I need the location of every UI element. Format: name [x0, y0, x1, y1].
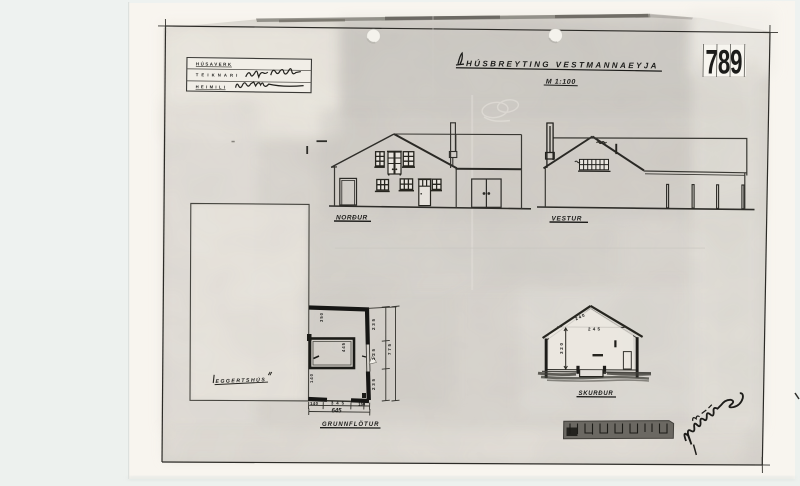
svg-text:345: 345 [331, 401, 345, 406]
svg-text:645: 645 [332, 409, 343, 415]
svg-text:235: 235 [371, 319, 376, 330]
svg-text:445: 445 [341, 342, 346, 352]
svg-text:GRUNNFLÖTUR: GRUNNFLÖTUR [322, 421, 379, 428]
svg-text:HEIMILI: HEIMILI [196, 84, 226, 89]
svg-text:225: 225 [371, 349, 376, 360]
svg-text:140: 140 [309, 373, 314, 383]
svg-text:235: 235 [371, 379, 376, 390]
svg-text:160: 160 [358, 401, 366, 406]
svg-text:320: 320 [559, 343, 564, 354]
svg-text:789: 789 [706, 44, 743, 82]
svg-text:SKURÐUR: SKURÐUR [579, 391, 614, 397]
svg-text:HÚSAVERK: HÚSAVERK [196, 61, 232, 67]
svg-text:140: 140 [310, 401, 319, 406]
svg-text:245: 245 [588, 327, 600, 332]
svg-text:350: 350 [319, 312, 324, 322]
svg-text:775: 775 [387, 344, 392, 355]
